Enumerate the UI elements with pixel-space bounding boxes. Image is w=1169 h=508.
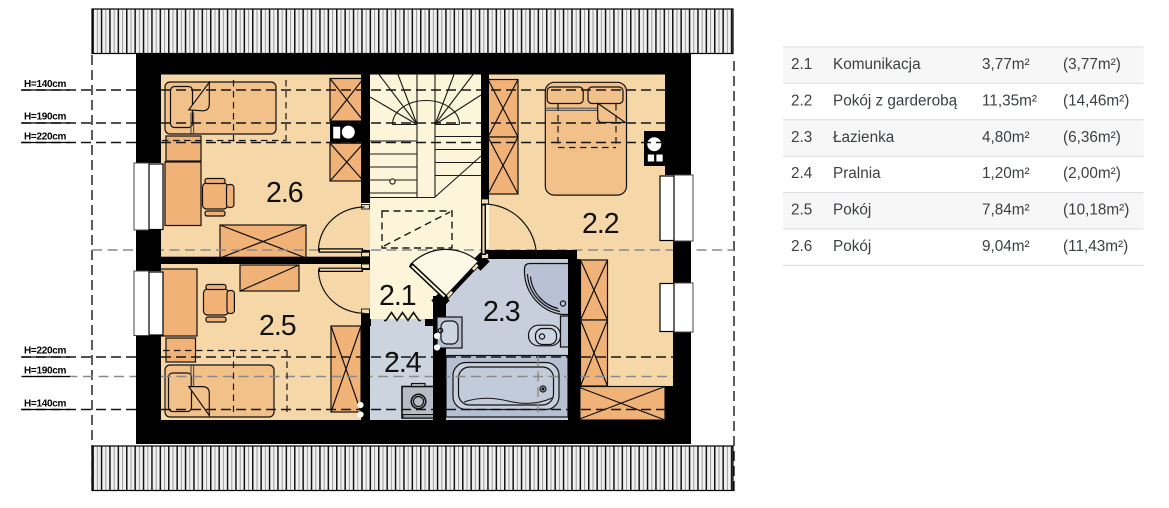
- svg-text:7,84m²: 7,84m²: [982, 202, 1030, 219]
- svg-text:2.3: 2.3: [483, 296, 520, 328]
- svg-text:2.1: 2.1: [791, 56, 812, 73]
- svg-text:H=190cm: H=190cm: [24, 366, 67, 377]
- svg-text:H=190cm: H=190cm: [24, 112, 67, 123]
- svg-text:H=140cm: H=140cm: [24, 399, 67, 410]
- svg-text:2.5: 2.5: [259, 310, 296, 342]
- svg-text:2.3: 2.3: [791, 129, 812, 146]
- svg-text:Komunikacja: Komunikacja: [833, 56, 921, 73]
- svg-text:2.2: 2.2: [582, 208, 619, 240]
- svg-text:(6,36m²): (6,36m²): [1063, 129, 1121, 146]
- svg-text:4,80m²: 4,80m²: [982, 129, 1030, 146]
- svg-text:(3,77m²): (3,77m²): [1063, 56, 1121, 73]
- svg-text:(14,46m²): (14,46m²): [1063, 92, 1129, 109]
- svg-text:H=140cm: H=140cm: [24, 79, 67, 90]
- svg-text:2.4: 2.4: [791, 165, 813, 182]
- svg-text:2.6: 2.6: [266, 177, 303, 209]
- svg-text:2.5: 2.5: [791, 202, 812, 219]
- svg-text:2.6: 2.6: [791, 238, 812, 255]
- svg-text:2.4: 2.4: [384, 347, 422, 379]
- svg-text:(10,18m²): (10,18m²): [1063, 202, 1129, 219]
- svg-text:9,04m²: 9,04m²: [982, 238, 1030, 255]
- svg-text:2.2: 2.2: [791, 92, 812, 109]
- svg-text:(2,00m²): (2,00m²): [1063, 165, 1121, 182]
- svg-text:(11,43m²): (11,43m²): [1063, 238, 1128, 255]
- svg-text:Pokój: Pokój: [833, 238, 871, 255]
- svg-text:Pokój: Pokój: [833, 202, 871, 219]
- svg-text:3,77m²: 3,77m²: [982, 56, 1030, 73]
- svg-text:2.1: 2.1: [379, 280, 416, 312]
- svg-text:Pokój z garderobą: Pokój z garderobą: [833, 92, 958, 109]
- svg-text:11,35m²: 11,35m²: [982, 92, 1037, 109]
- svg-text:1,20m²: 1,20m²: [982, 165, 1030, 182]
- svg-text:Pralnia: Pralnia: [833, 165, 881, 182]
- svg-text:Łazienka: Łazienka: [833, 129, 895, 146]
- svg-text:H=220cm: H=220cm: [24, 346, 67, 357]
- svg-text:H=220cm: H=220cm: [24, 132, 67, 143]
